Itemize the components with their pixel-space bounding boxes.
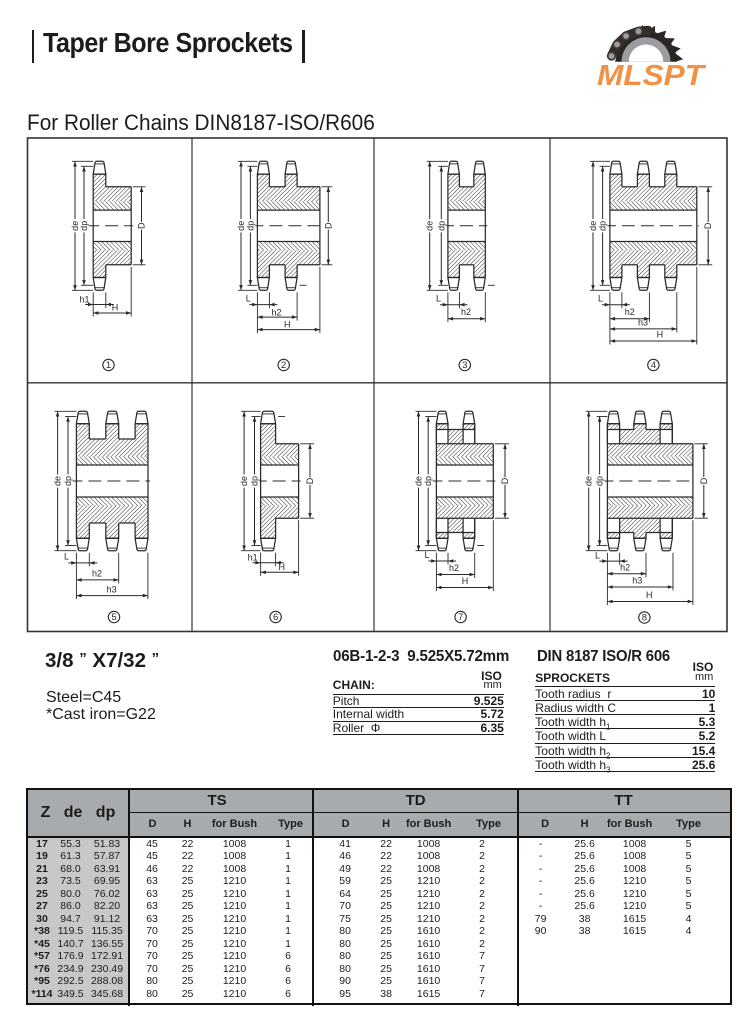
- svg-text:h2: h2: [271, 307, 281, 317]
- svg-text:de: de: [425, 221, 435, 231]
- svg-text:dp: dp: [598, 221, 608, 231]
- svg-text:H: H: [657, 330, 664, 340]
- svg-text:h3: h3: [107, 584, 117, 594]
- svg-text:L: L: [436, 294, 441, 304]
- svg-text:h2: h2: [620, 562, 630, 572]
- svg-text:D: D: [703, 222, 713, 229]
- svg-text:dp: dp: [250, 476, 260, 486]
- svg-text:de: de: [588, 221, 598, 231]
- svg-text:h2: h2: [461, 307, 471, 317]
- svg-text:D: D: [137, 222, 147, 229]
- svg-text:H: H: [112, 303, 119, 313]
- svg-text:D: D: [500, 477, 510, 484]
- svg-text:h3: h3: [638, 318, 648, 328]
- svg-text:de: de: [584, 476, 594, 486]
- svg-text:7: 7: [458, 612, 463, 623]
- svg-text:5: 5: [111, 612, 116, 623]
- svg-text:dp: dp: [436, 221, 446, 231]
- svg-text:h3: h3: [632, 576, 642, 586]
- svg-text:8: 8: [642, 613, 647, 624]
- svg-text:H: H: [462, 576, 469, 586]
- svg-text:h2: h2: [625, 307, 635, 317]
- svg-text:D: D: [305, 477, 315, 484]
- svg-text:L: L: [595, 550, 600, 560]
- svg-text:de: de: [53, 476, 63, 486]
- svg-text:h2: h2: [92, 569, 102, 579]
- svg-text:L: L: [598, 294, 603, 304]
- svg-text:D: D: [699, 477, 709, 484]
- svg-text:dp: dp: [595, 476, 605, 486]
- svg-text:dp: dp: [79, 221, 89, 231]
- svg-text:4: 4: [651, 360, 656, 371]
- svg-text:de: de: [239, 476, 249, 486]
- svg-text:3: 3: [462, 360, 467, 371]
- svg-text:2: 2: [281, 360, 286, 371]
- svg-text:H: H: [278, 562, 285, 572]
- svg-text:L: L: [246, 294, 251, 304]
- svg-text:L: L: [424, 550, 429, 560]
- svg-text:D: D: [323, 222, 333, 229]
- svg-text:L: L: [64, 552, 69, 562]
- svg-text:H: H: [284, 320, 291, 330]
- svg-text:h2: h2: [449, 563, 459, 573]
- svg-text:1: 1: [106, 360, 111, 371]
- svg-text:dp: dp: [423, 476, 433, 486]
- svg-text:de: de: [414, 476, 424, 486]
- svg-text:h1: h1: [248, 553, 258, 563]
- svg-text:H: H: [646, 590, 653, 600]
- svg-text:dp: dp: [245, 221, 255, 231]
- svg-text:dp: dp: [63, 476, 73, 486]
- svg-text:h1: h1: [79, 294, 89, 304]
- svg-text:6: 6: [273, 612, 278, 623]
